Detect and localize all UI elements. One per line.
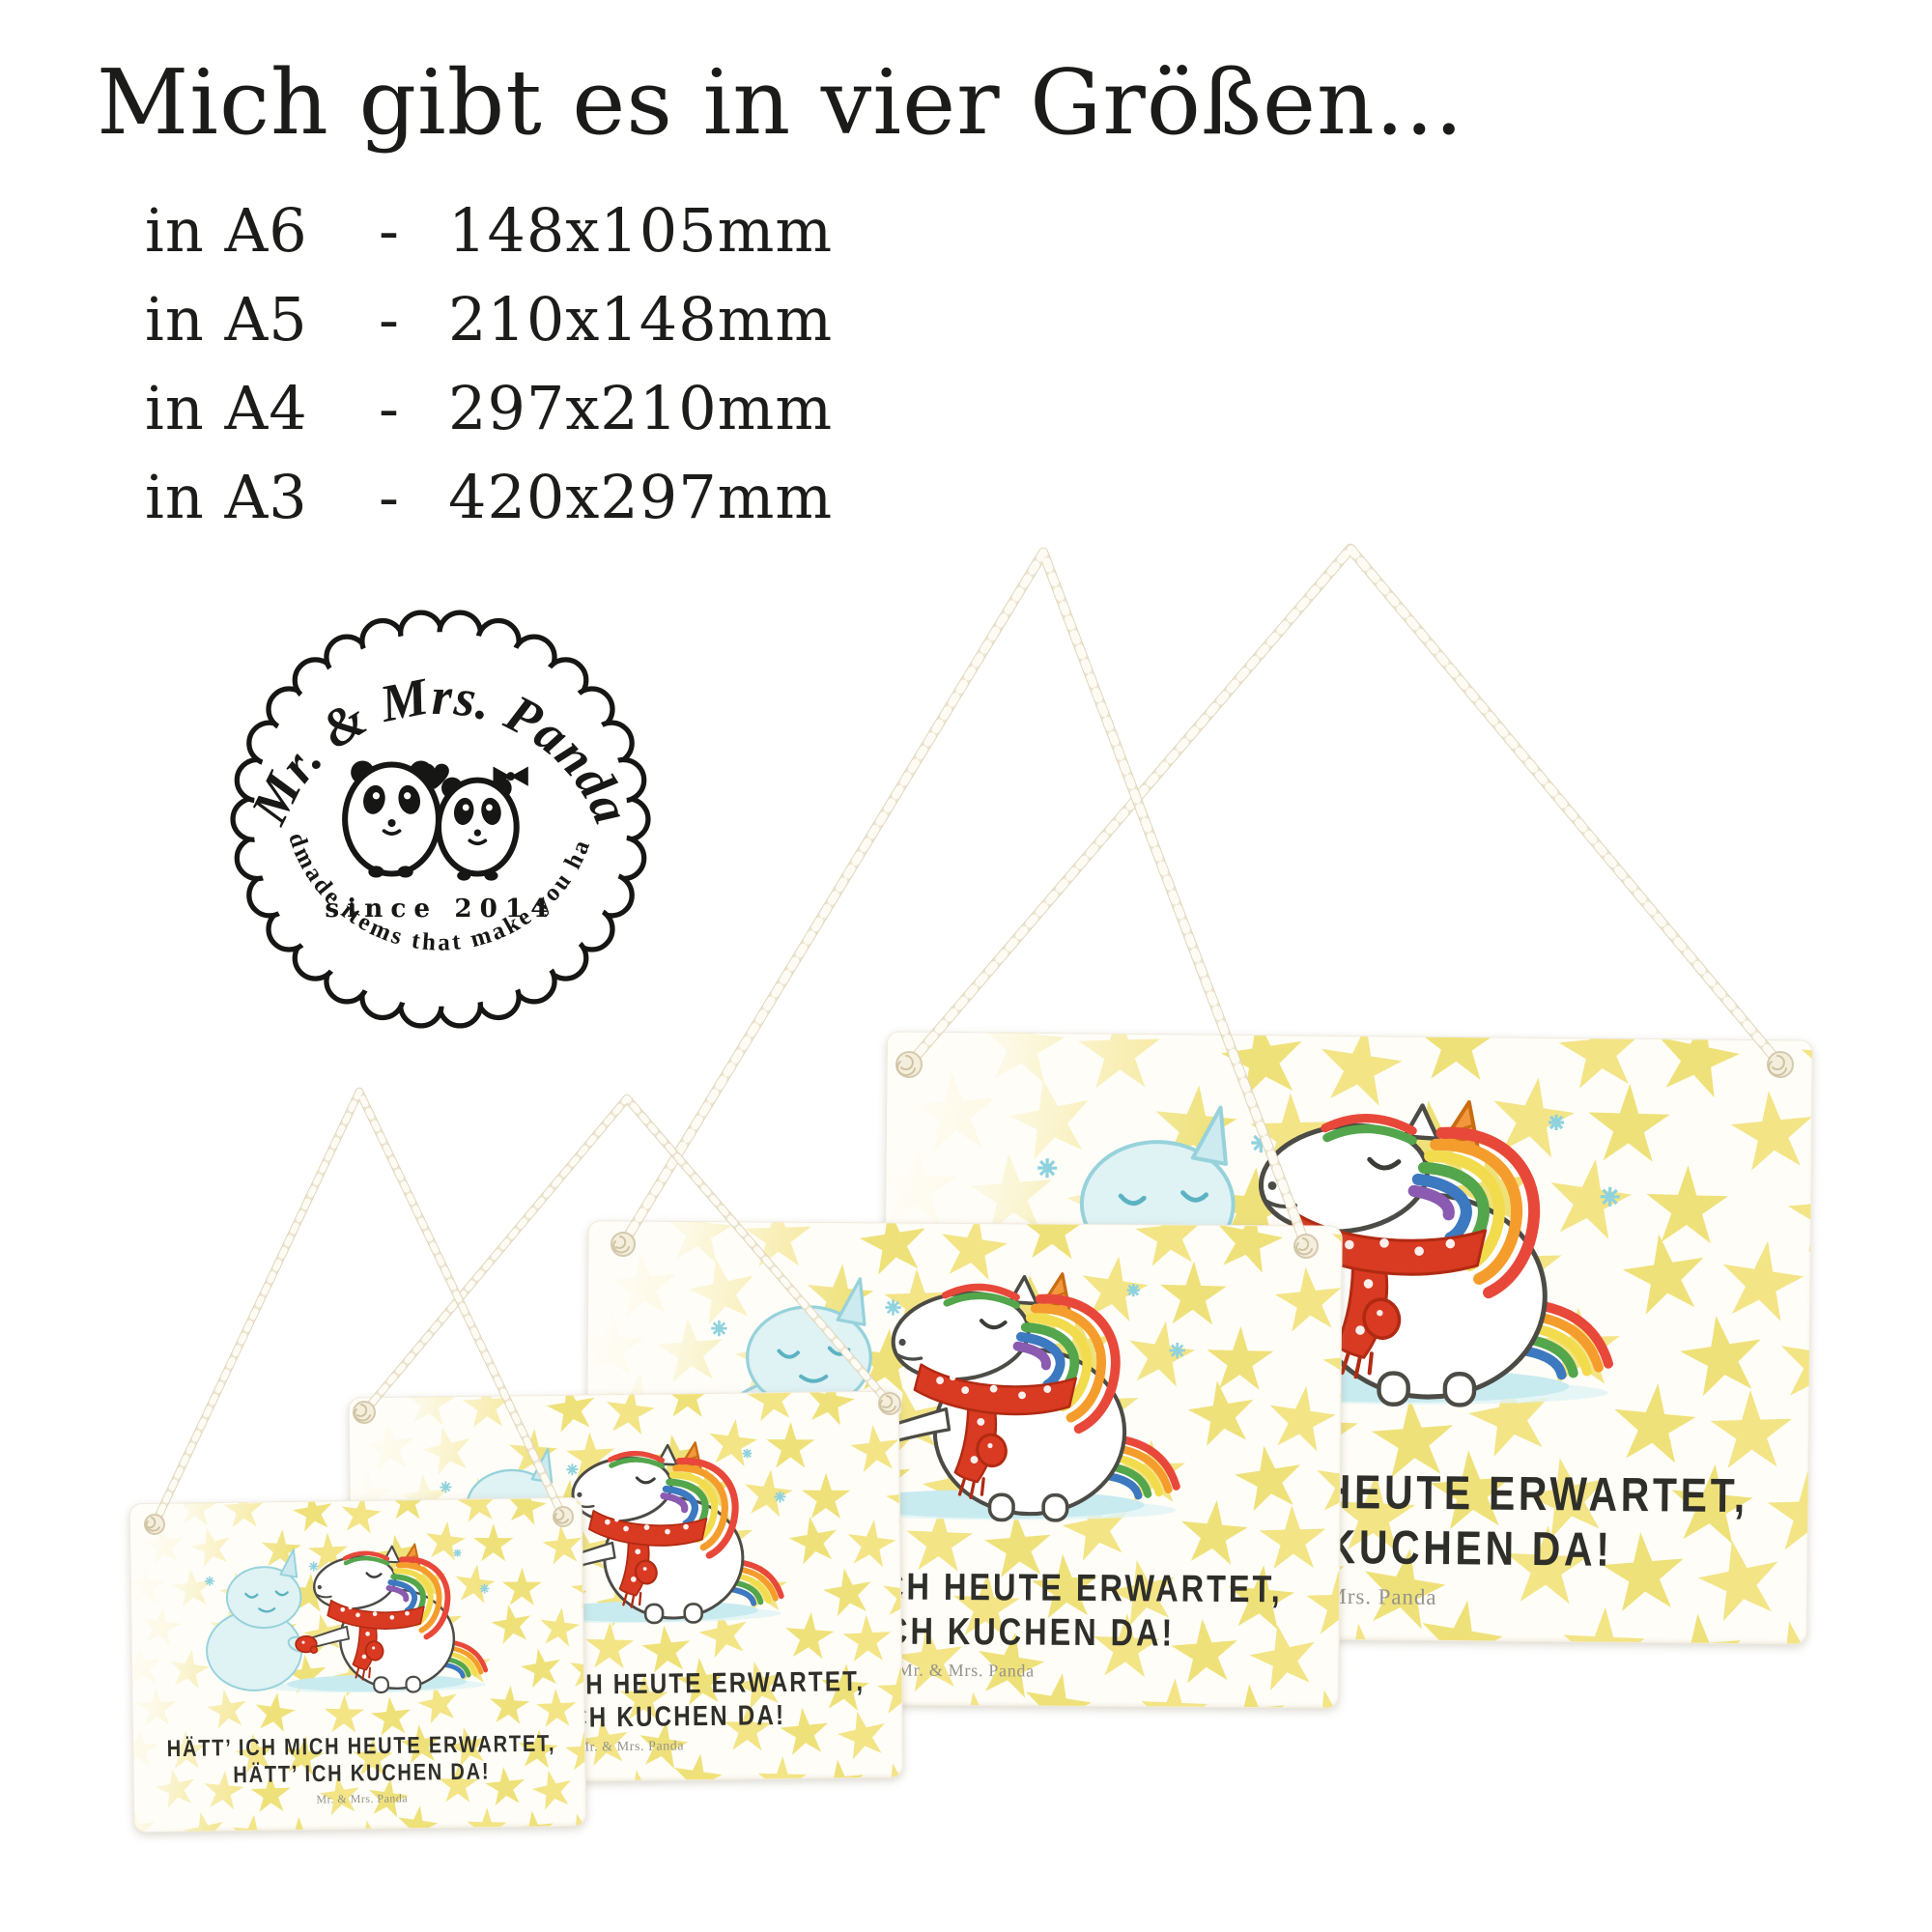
product-size-infographic: Mich gibt es in vier Größen... in A6 - 1… — [0, 0, 1932, 1932]
size-dash: - — [379, 462, 448, 532]
size-dash: - — [379, 284, 448, 355]
page-title: Mich gibt es in vier Größen... — [97, 50, 1464, 155]
size-dims: 148x105mm — [448, 195, 833, 266]
size-row-a4: in A4 - 297x210mm — [145, 363, 833, 452]
size-label: in A6 — [145, 195, 379, 266]
unicorn-snowman-illustration — [171, 1515, 553, 1726]
size-dims: 297x210mm — [448, 373, 833, 443]
quote-line2: HÄTT’ ICH KUCHEN DA! — [162, 1756, 561, 1792]
size-dims: 420x297mm — [448, 462, 833, 532]
size-row-a3: in A3 - 420x297mm — [145, 452, 833, 541]
size-dash: - — [379, 195, 448, 266]
size-row-a5: in A5 - 210x148mm — [145, 274, 833, 363]
size-row-a6: in A6 - 148x105mm — [145, 185, 833, 274]
sign-quote: HÄTT’ ICH MICH HEUTE ERWARTET, HÄTT’ ICH… — [147, 1729, 577, 1810]
size-dims: 210x148mm — [448, 284, 833, 355]
brand-badge: Mr. & Mrs. Panda since 2014 Handmade ite… — [226, 605, 655, 1034]
size-label: in A5 — [145, 284, 379, 355]
sign-a6: HÄTT’ ICH MICH HEUTE ERWARTET, HÄTT’ ICH… — [129, 1497, 587, 1833]
size-label: in A4 — [145, 373, 379, 443]
size-list: in A6 - 148x105mm in A5 - 210x148mm in A… — [145, 185, 833, 541]
size-dash: - — [379, 373, 448, 443]
size-label: in A3 — [145, 462, 379, 532]
